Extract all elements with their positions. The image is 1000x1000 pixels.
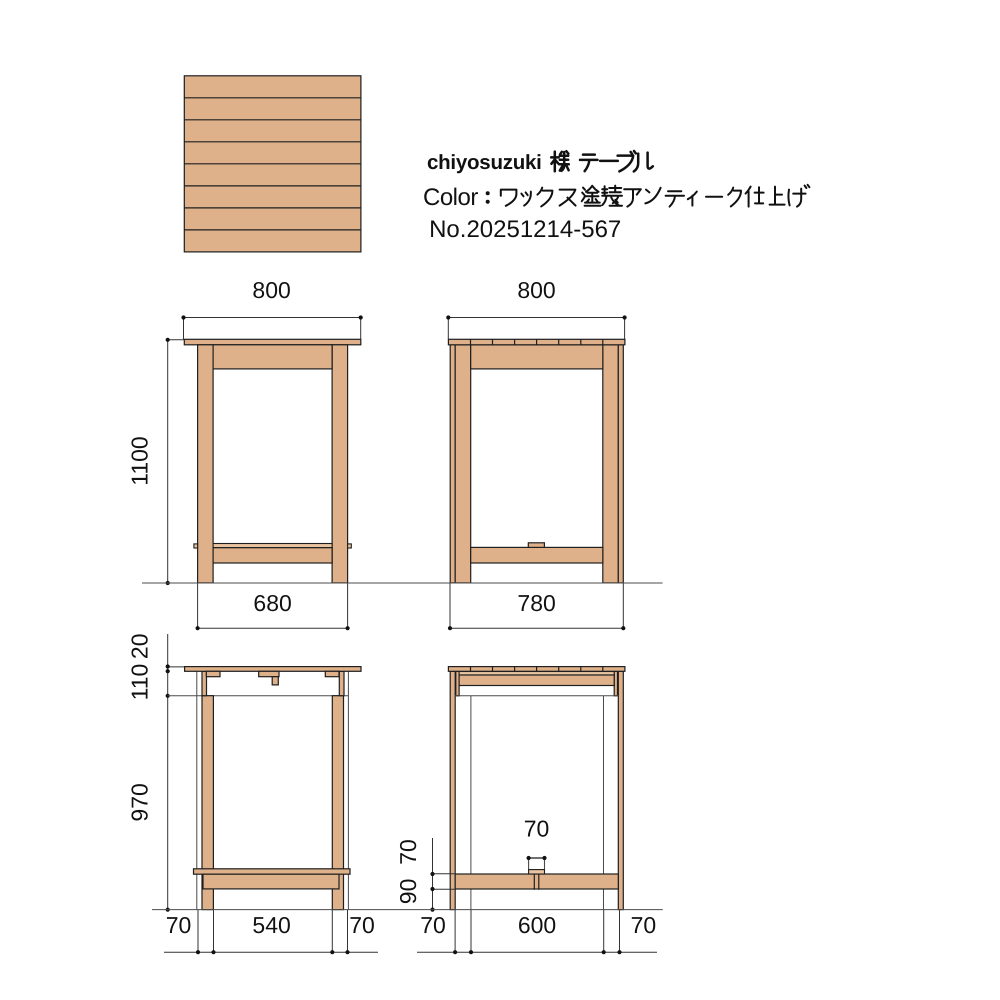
svg-text:800: 800 <box>517 277 555 303</box>
svg-text:70: 70 <box>420 912 446 938</box>
svg-text:780: 780 <box>517 590 555 616</box>
svg-text:70: 70 <box>524 816 550 842</box>
svg-text:110: 110 <box>127 664 153 701</box>
svg-text:1100: 1100 <box>126 436 152 485</box>
svg-text:20: 20 <box>127 634 153 660</box>
svg-text:540: 540 <box>252 912 290 938</box>
svg-text:800: 800 <box>252 277 290 303</box>
svg-text:No.20251214-567: No.20251214-567 <box>429 216 621 243</box>
svg-text:chiyosuzuki: chiyosuzuki <box>427 151 542 174</box>
svg-text:970: 970 <box>127 783 153 821</box>
svg-text:Color: Color <box>423 184 478 211</box>
svg-text:90: 90 <box>395 879 421 905</box>
svg-text:70: 70 <box>631 912 657 938</box>
svg-text:70: 70 <box>349 912 375 938</box>
svg-text:70: 70 <box>166 912 192 938</box>
svg-text:680: 680 <box>253 590 291 616</box>
svg-text:70: 70 <box>395 839 421 865</box>
svg-text:600: 600 <box>518 912 556 938</box>
